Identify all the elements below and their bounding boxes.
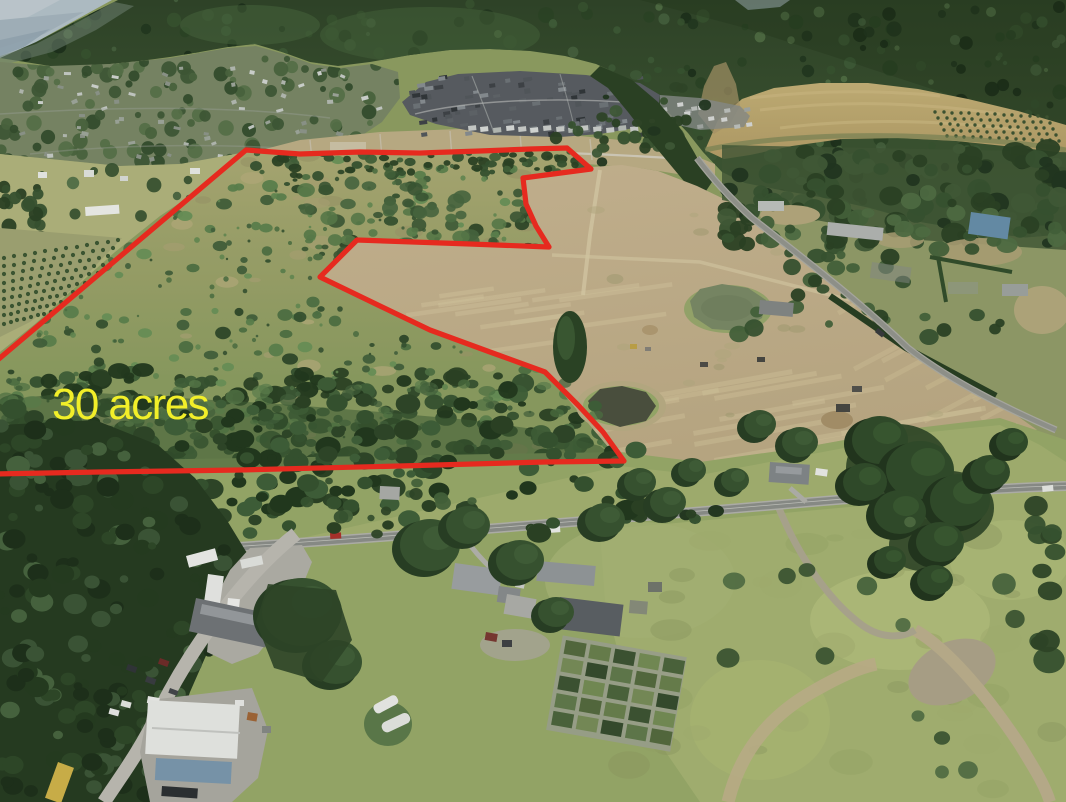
svg-text:30 acres: 30 acres — [52, 380, 209, 429]
